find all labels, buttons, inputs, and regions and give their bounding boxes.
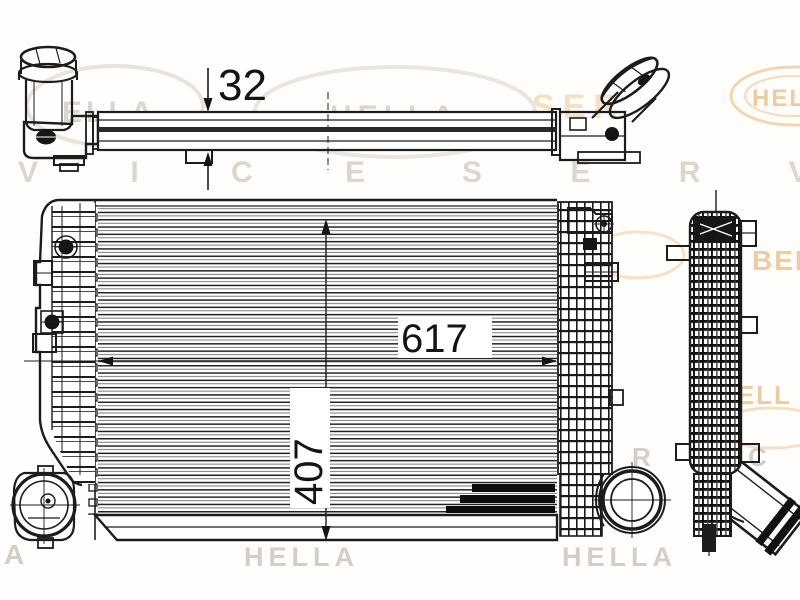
bolt	[583, 238, 597, 250]
front-view-right-tank	[558, 202, 623, 536]
dimension-height-label: 407	[287, 438, 331, 505]
front-view: 617 407	[10, 200, 671, 548]
dimension-thickness-label: 32	[218, 61, 267, 110]
intercooler-technical-drawing: ELLA HELLA SER HELLA V I C E S E R V I H…	[0, 0, 800, 600]
side-view-body	[690, 212, 741, 474]
mount-tab	[741, 317, 757, 333]
watermark-service-row-right: S E R V I	[462, 156, 800, 189]
watermark-text: HELLA	[752, 85, 800, 112]
mount-tab	[676, 444, 690, 460]
watermark-text: HELLA	[562, 542, 677, 572]
watermark-text: HELLA	[244, 542, 359, 572]
watermark-text: A	[4, 539, 24, 570]
watermark-text: BEH	[752, 245, 800, 276]
front-view-left-tank	[33, 200, 95, 485]
mount-tab	[667, 246, 690, 260]
dimension-width-label: 617	[401, 317, 468, 361]
